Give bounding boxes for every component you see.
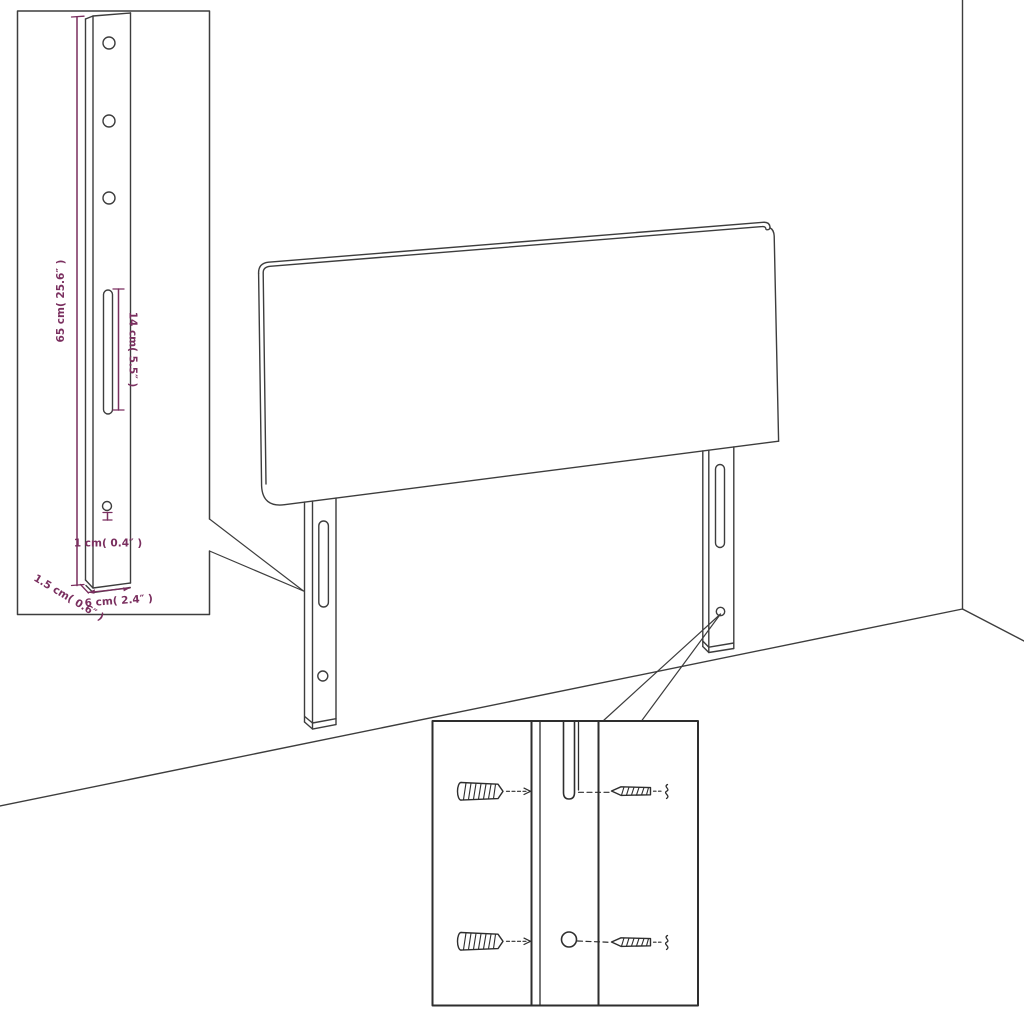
plug-thread-hatch [464, 783, 496, 800]
screw-body [612, 938, 651, 947]
left-leg-bottom-edge [305, 722, 337, 729]
screw-body [612, 787, 651, 796]
plug-thread-hatch [464, 933, 496, 950]
screw-head-mark [666, 785, 668, 799]
panel-left-and-bottom-edge [259, 274, 779, 506]
detail-leg-drawing [86, 13, 131, 593]
fastener-leader-line-right [642, 614, 721, 721]
left-leg-slot [319, 521, 329, 607]
dimension-14cm-label: 14 cm( 5.5″ ) [127, 312, 139, 388]
floor-edge-right [963, 609, 1024, 641]
floor-edge-left [0, 609, 963, 806]
callout-leader-line-upper [210, 519, 304, 591]
headboard-diagram: 65 cm( 25.6″ ) 14 cm( 5.5″ ) 1 cm( 0.4″ … [0, 0, 1024, 1024]
wall-plug-top [458, 783, 531, 801]
screw-head-mark [666, 936, 668, 950]
dimension-1cm: 1 cm( 0.4″ ) [74, 513, 142, 550]
right-leg-bottom-edge [703, 647, 734, 653]
detail-screw-hole-1 [103, 37, 115, 49]
dimension-6cm-label: 6 cm( 2.4″ ) [84, 593, 153, 610]
strip-hole [562, 932, 577, 947]
screw-thread-hatch [622, 938, 649, 946]
dimension-6cm: 6 cm( 2.4″ ) [84, 587, 153, 609]
dimension-14cm: 14 cm( 5.5″ ) [113, 289, 139, 410]
plug-flange [458, 783, 461, 801]
screw-top [579, 785, 668, 799]
fastener-leg-strip [532, 722, 599, 1005]
plug-body [461, 933, 503, 951]
left-mounting-leg [305, 498, 337, 729]
main-drawing [0, 0, 1024, 806]
fastener-box-border [433, 721, 699, 1006]
left-leg-hole [318, 671, 328, 681]
panel-top-inner-edge [263, 227, 766, 273]
detail-adjustment-slot [104, 290, 113, 414]
fastener-leader-line-left [603, 614, 721, 721]
plug-body [461, 783, 503, 801]
screw-thread-hatch [622, 787, 649, 795]
dimension-1cm-label: 1 cm( 0.4″ ) [74, 538, 142, 550]
plug-flange [458, 933, 461, 951]
diagram-canvas: 65 cm( 25.6″ ) 14 cm( 5.5″ ) 1 cm( 0.4″ … [0, 0, 1024, 1024]
callout-box-border [18, 11, 210, 615]
callout-leader-line-lower [210, 551, 304, 591]
dim-line [81, 585, 89, 594]
right-mounting-leg [703, 447, 734, 653]
panel-top-outer-edge [259, 222, 770, 273]
strip-slot [564, 722, 575, 799]
detail-callout-box-fasteners [433, 721, 699, 1006]
left-leg-foot-line [305, 717, 336, 724]
detail-leg-top-edge [86, 13, 131, 19]
screw-bottom [578, 936, 668, 950]
dimension-65cm: 65 cm( 25.6″ ) [55, 16, 84, 585]
wall-plug-bottom [458, 933, 531, 951]
right-leg-foot-line [703, 641, 734, 647]
right-leg-slot [716, 465, 725, 548]
detail-screw-hole-3 [103, 192, 115, 204]
screw-align-dash [578, 941, 611, 942]
panel-right-edge [770, 228, 779, 441]
panel-left-inner-edge [263, 274, 266, 485]
detail-screw-hole-4 [103, 502, 112, 511]
dimension-65cm-label: 65 cm( 25.6″ ) [55, 260, 67, 343]
wall-corner-lines [0, 0, 1024, 806]
fastener-callout-leaders [603, 614, 721, 721]
detail-leg-bottom-edge [86, 580, 131, 588]
detail-screw-hole-2 [103, 115, 115, 127]
headboard-panel [259, 222, 779, 505]
